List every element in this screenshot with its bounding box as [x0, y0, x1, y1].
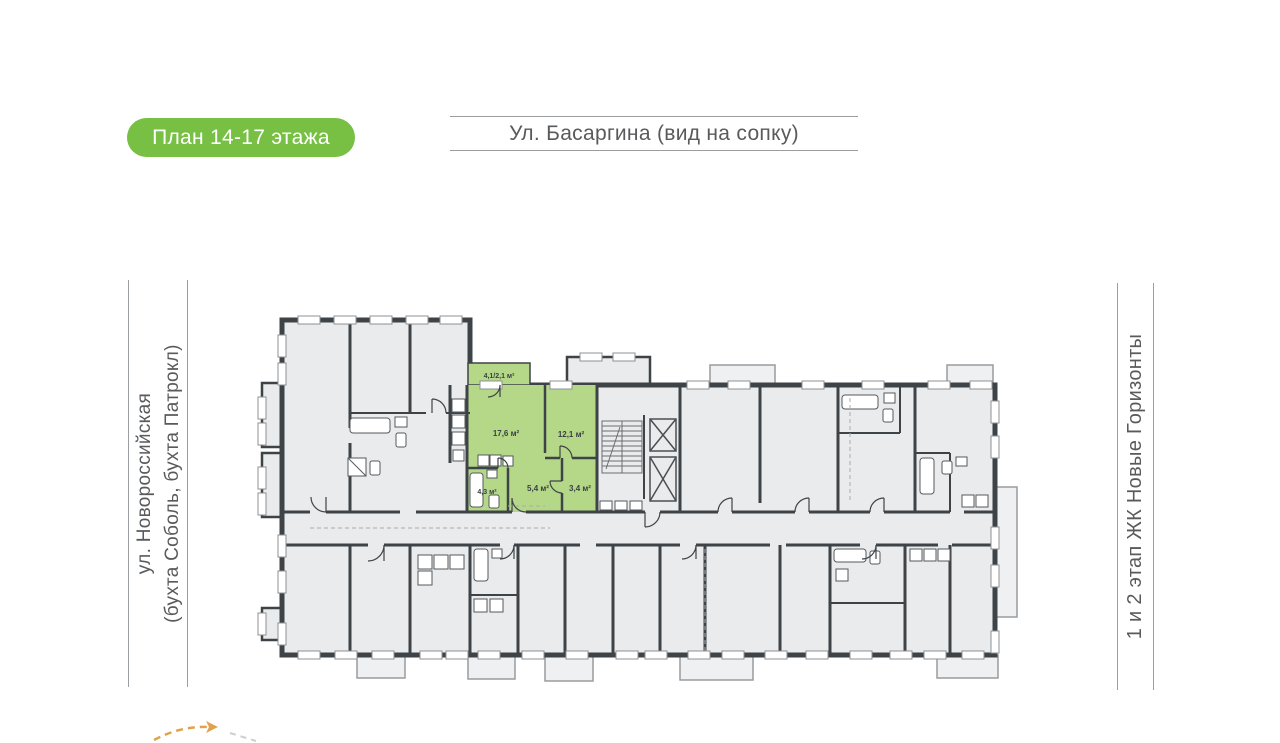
- street-label-top: Ул. Басаргина (вид на сопку): [450, 116, 858, 151]
- wc-area-label: 3,4 м²: [569, 484, 591, 493]
- street-label-left: ул. Новороссийская (бухта Соболь, бухта …: [130, 344, 185, 623]
- street-label-left-line2: (бухта Соболь, бухта Патрокл): [158, 344, 186, 623]
- living-room-area-label: 17,6 м²: [493, 429, 520, 438]
- balcony-area-label: 4,1/2,1 м²: [484, 373, 516, 380]
- compass-arrow: [140, 714, 280, 743]
- hallway-area-label: 5,4 м²: [527, 484, 549, 493]
- street-label-left-container: ул. Новороссийская (бухта Соболь, бухта …: [128, 280, 188, 687]
- street-label-left-line1: ул. Новороссийская: [130, 344, 158, 623]
- compass-faint-arc: [230, 733, 256, 741]
- compass-arrowhead-icon: [206, 721, 218, 733]
- floor-plan-badge: План 14-17 этажа: [127, 118, 355, 157]
- compass-dashed-arc: [154, 727, 208, 740]
- bathroom-area-label: 4,3 м²: [477, 489, 497, 496]
- stage-label-right: 1 и 2 этап ЖК Новые Горизонты: [1121, 334, 1150, 639]
- bedroom-area-label: 12,1 м²: [558, 430, 585, 439]
- floor-plan: 4,1/2,1 м² 17,6 м² 12,1 м² 4,3 м² 5,4 м²…: [250, 303, 1020, 703]
- stage-label-right-container: 1 и 2 этап ЖК Новые Горизонты: [1117, 283, 1154, 690]
- shaft-vents: [600, 501, 642, 510]
